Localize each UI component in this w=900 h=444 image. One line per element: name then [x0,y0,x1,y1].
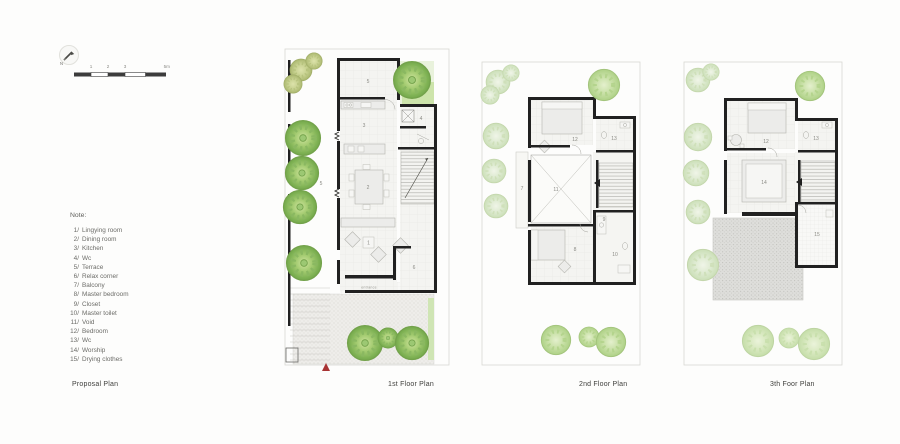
note-item: 11/Void [66,318,196,327]
scale-tick-3: 3 [124,64,127,69]
entrance-label: entrance [361,286,377,290]
room-label-terrace: 5 [367,79,370,85]
note-item: 9/Closet [66,300,196,309]
note-title: Note: [70,212,196,219]
scale-tick-1: 1 [90,64,93,69]
proposal-plan-title: Proposal Plan [72,381,118,388]
drawing-sheet: N 1 2 3 5m Note: 1/Lingying room 2/Dinin… [0,0,900,444]
washer [826,210,833,217]
room-label-relax: 6 [413,265,416,271]
north-label: N [60,61,63,66]
note-item: 4/Wc [66,254,196,263]
room-label-closet: 9 [603,217,606,223]
room-label-master: 8 [574,247,577,253]
note-item: 14/Worship [66,346,196,355]
note-item: 5/Terrace [66,263,196,272]
first-floor-plan-title: 1st Floor Plan [388,381,434,388]
note-item: 15/Drying clothes [66,355,196,364]
note-item: 3/Kitchen [66,244,196,253]
note-item: 12/Bedroom [66,327,196,336]
second-floor-plan-drawing: 12 13 7 11 8 9 10 [480,60,644,372]
stairs [401,152,434,204]
scale-bar: 1 2 3 5m [74,64,170,80]
note-item: 1/Lingying room [66,226,196,235]
roof-terrace [713,218,803,300]
note-item: 6/Relax corner [66,272,196,281]
note-item: 10/Master toilet [66,309,196,318]
note-item: 2/Dining room [66,235,196,244]
room-label-drying: 15 [814,232,820,238]
room-label-balcony: 7 [521,186,524,192]
room-label-wc: 13 [813,136,819,142]
room-label-worship: 14 [761,180,767,186]
room-label-bedroom: 12 [763,139,769,145]
room-label-kitchen: 3 [363,123,366,129]
scale-bar-graphic [74,70,170,78]
room-label-living: 1 [367,241,370,247]
stairs [796,161,835,202]
room-label-dining: 2 [367,185,370,191]
first-floor-plan-drawing: 5 5 3 4 2 1 6 entrance [281,46,453,376]
void-room [531,155,591,223]
room-label-bedroom: 12 [572,137,578,143]
note-item: 8/Master bedroom [66,290,196,299]
third-floor-plan-drawing: 12 13 14 15 [682,60,846,372]
room-label-void: 11 [553,187,558,193]
second-floor-plan-title: 2nd Floor Plan [579,381,627,388]
room-label-wc: 13 [611,136,617,142]
scale-tick-2: 2 [107,64,110,69]
room-label-toilet: 10 [612,252,618,258]
stairs [594,163,633,207]
room-label-wc: 4 [420,116,423,122]
note-legend: Note: 1/Lingying room 2/Dining room 3/Ki… [66,212,196,364]
third-floor-plan-title: 3th Foor Plan [770,381,815,388]
note-item: 13/Wc [66,336,196,345]
room-label-side-terrace: 5 [320,181,323,187]
scale-unit-label: 5m [164,64,170,69]
note-item: 7/Balcony [66,281,196,290]
